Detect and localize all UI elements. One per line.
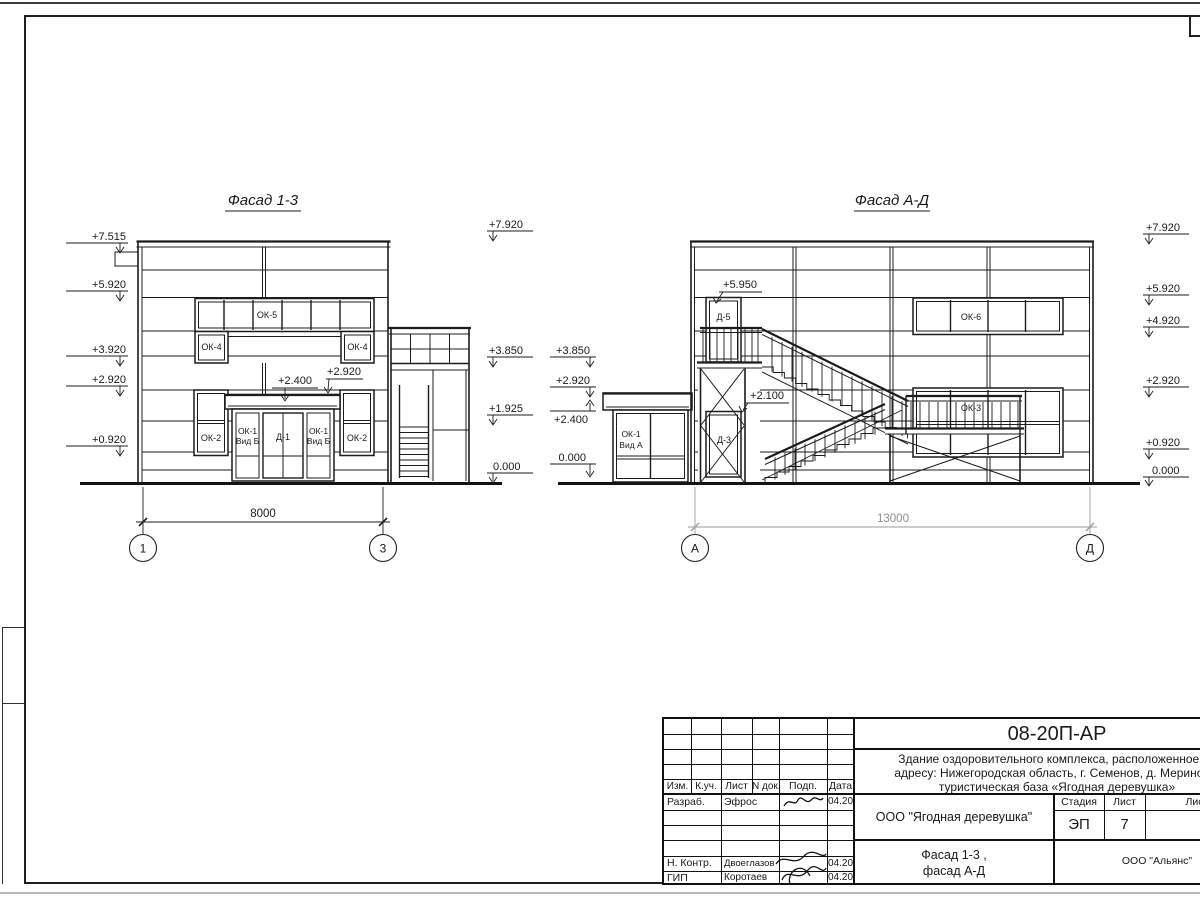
window-label: ОК-1 [238,426,257,436]
facade-drawings: Фасад 1-3 ОК-5 ОК [0,0,1200,720]
svg-text:+2.400: +2.400 [554,414,588,426]
svg-text:+3.850: +3.850 [489,345,523,357]
svg-text:13000: 13000 [877,513,909,525]
svg-text:+1.925: +1.925 [489,403,523,415]
entrance-doors: ОК-1 Вид Б Д-1 ОК-1 Вид Б [232,409,334,481]
dimension-13000: 13000 [688,487,1097,536]
svg-text:+5.920: +5.920 [92,279,126,291]
stage-value: ЭП [1054,810,1104,840]
svg-text:+2.400: +2.400 [278,375,312,387]
window-label: ОК-5 [257,310,277,320]
svg-text:+2.920: +2.920 [92,374,126,386]
page-bottom-edge [0,892,1200,894]
window-label: ОК-3 [961,403,981,413]
signature-razrab [780,793,826,811]
door-label: Д-5 [716,312,730,322]
sheet-label: Лист [1104,794,1145,810]
svg-text:0.000: 0.000 [558,452,586,464]
svg-text:0.000: 0.000 [1152,465,1180,477]
svg-text:А: А [691,542,699,556]
project-description-line3: туристическая база «Ягодная деревушка» [854,780,1200,794]
window-ok6: ОК-6 [913,298,1063,335]
drawing-sheet-viewer: { "facade13": { "title": "Фасад 1-3", "e… [0,0,1200,900]
svg-text:+2.920: +2.920 [556,375,590,387]
svg-text:+4.920: +4.920 [1146,315,1180,327]
drawing-name-line2: фасад А-Д [854,863,1054,879]
vestibule: ОК-1 Вид А [603,393,692,482]
date-gip: 04.20 [827,871,854,885]
dimension-8000: 8000 [136,487,390,534]
facade-1-3-title: Фасад 1-3 [228,192,299,209]
stair-lower-flight [762,404,902,483]
date-nkontr: 04.20 [827,856,854,871]
col-header-data: Дата [827,779,854,794]
door-label: Д-3 [717,435,731,445]
sheets-label: Листов [1145,794,1200,810]
project-description-line2: адресу: Нижегородская область, г. Семено… [854,766,1200,780]
vent-box [115,252,138,266]
axis-circle-1: 1 [130,535,157,562]
axis-circle-3: 3 [370,535,397,562]
col-header-list: Лист [721,779,752,794]
svg-text:3: 3 [380,542,387,556]
window-label: ОК-1 [621,429,640,439]
document-code: 08-20П-АР [854,719,1200,749]
window-label: Вид А [619,440,643,450]
svg-text:Д: Д [1086,542,1094,556]
svg-text:+7.920: +7.920 [489,219,523,231]
svg-text:+0.920: +0.920 [1146,437,1180,449]
window-label: ОК-6 [961,312,981,322]
elevation-marks-mid: +7.920 +3.850 +1.925 0.000 [487,219,533,483]
window-label: ОК-2 [347,433,367,443]
role-razrab: Разраб. [667,794,721,810]
elevation-marks-ad-right: +7.920 +5.920 +4.920 +2.920 +0.920 0.000 [1143,222,1189,486]
elevation-marks-ad-left: +3.850 +2.920 +2.400 0.000 [550,345,596,477]
window-label: ОК-4 [201,342,221,352]
svg-text:+2.100: +2.100 [750,390,784,402]
door-label: Д-1 [276,432,290,442]
svg-text:8000: 8000 [250,508,276,520]
project-description-line1: Здание оздоровительного комплекса, распо… [854,752,1200,766]
role-nkontr: Н. Контр. [667,856,721,871]
axis-circle-a: А [682,535,709,562]
svg-text:0.000: 0.000 [493,461,521,473]
window-ok4-right: ОК-4 [341,332,374,364]
col-header-kuch: К.уч. [691,779,721,794]
drawing-name-line1: Фасад 1-3 , [854,847,1054,863]
design-company: ООО "Альянс" [1054,840,1200,883]
svg-text:+2.920: +2.920 [1146,375,1180,387]
window-ok2-right: ОК-2 [340,390,374,456]
svg-text:+5.950: +5.950 [723,279,757,291]
svg-text:+7.920: +7.920 [1146,222,1180,234]
window-label: Вид Б [236,436,260,446]
role-gip: ГИП [667,871,721,885]
window-label: ОК-1 [309,426,328,436]
col-header-podp: Подп. [779,779,827,794]
window-label: ОК-4 [347,342,367,352]
sheet-number: 7 [1104,810,1145,840]
svg-text:+2.920: +2.920 [327,366,361,378]
name-efros: Эфрос [724,794,779,810]
svg-text:+3.850: +3.850 [556,345,590,357]
stage-label: Стадия [1054,794,1104,810]
window-label: Вид Б [307,436,331,446]
window-ok4-left: ОК-4 [195,332,228,364]
svg-text:+5.920: +5.920 [1146,283,1180,295]
svg-text:+0.920: +0.920 [92,434,126,446]
col-header-izm: Изм. [664,779,691,794]
svg-text:1: 1 [140,542,147,556]
svg-text:+3.920: +3.920 [92,344,126,356]
date-razrab: 04.20 [827,794,854,810]
window-ok2-left: ОК-2 [194,390,228,456]
client-organization: ООО "Ягодная деревушка" [854,794,1054,840]
svg-text:+7.515: +7.515 [92,231,126,243]
facade-a-d: Фасад А-Д ОК-6 ОК-3 [550,192,1189,562]
axis-circle-d: Д [1077,535,1104,562]
col-header-ndok: N док. [752,779,779,794]
facade-1-3: Фасад 1-3 ОК-5 ОК [66,192,533,562]
signature-nkontr-gip [768,846,830,886]
facade-a-d-title: Фасад А-Д [855,192,930,209]
stair-annex [388,328,471,482]
title-block: Изм. К.уч. Лист N док. Подп. Дата Разраб… [662,717,1200,885]
window-label: ОК-2 [201,433,221,443]
